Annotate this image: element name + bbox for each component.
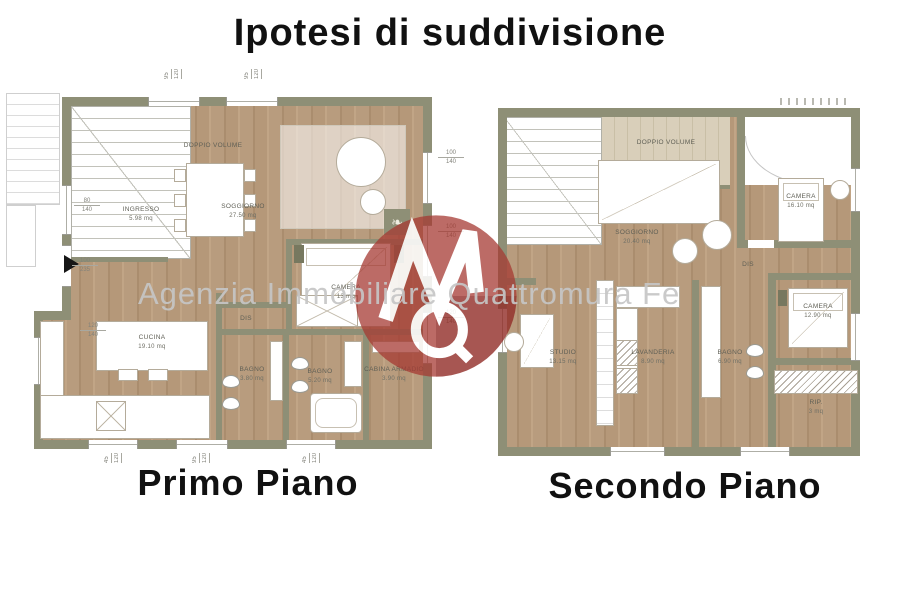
dim-label: 95120: [244, 69, 262, 79]
room-label-camera-2: CAMERA12.90 mq: [783, 302, 853, 321]
wall: [776, 358, 860, 365]
chair: [244, 219, 256, 232]
dining-table: [186, 163, 244, 237]
room-label-lavanderia: LAVANDERIA8.90 mq: [618, 348, 688, 367]
dim-label: 95120: [164, 69, 182, 79]
page-title: Ipotesi di suddivisione: [0, 12, 900, 55]
sofa-sketch: [602, 164, 716, 220]
room-label-dis: DIS: [231, 314, 261, 324]
room-label-cucina: CUCINA19.10 mq: [117, 333, 187, 352]
dim-ticks: [780, 98, 846, 105]
window: [88, 440, 138, 449]
chair: [174, 169, 186, 182]
stool: [118, 369, 138, 381]
door-opening: [748, 240, 774, 248]
dim-label: 100140: [438, 149, 464, 166]
dim-label: 120140: [80, 322, 106, 339]
stairwell: [71, 106, 191, 259]
window: [740, 447, 790, 456]
bidet-icon: [746, 366, 764, 379]
room-label-soggiorno: SOGGIORNO20.40 mq: [602, 228, 672, 247]
pouf: [672, 238, 698, 264]
room-label-soggiorno: SOGGIORNO27.50 mq: [208, 202, 278, 221]
room-label-doppio-volume: DOPPIO VOLUME: [631, 138, 701, 148]
room-label-bagno-1: BAGNO3.80 mq: [217, 365, 287, 384]
roof-void: [745, 117, 851, 185]
room-label-studio: STUDIO13.15 mq: [528, 348, 598, 367]
window: [148, 97, 200, 106]
room-label-bagno-2: BAGNO5.20 mq: [285, 367, 355, 386]
wall: [498, 108, 860, 117]
window: [176, 440, 228, 449]
wall: [498, 447, 860, 456]
room-label-doppio-volume: DOPPIO VOLUME: [178, 141, 248, 151]
wall: [776, 273, 860, 280]
exterior-landing: [6, 205, 36, 267]
chair: [244, 169, 256, 182]
stove: [96, 401, 126, 431]
window: [851, 168, 860, 212]
window: [423, 152, 432, 204]
armchair: [702, 220, 732, 250]
wall: [737, 117, 745, 247]
exterior-stairs: [6, 93, 60, 205]
bidet-icon: [222, 397, 240, 410]
room-label-bagno: BAGNO6.90 mq: [695, 348, 765, 367]
nightstand: [294, 245, 304, 263]
window: [62, 185, 71, 235]
bathtub-inner: [315, 398, 357, 428]
window: [286, 440, 336, 449]
dryer: [616, 368, 638, 394]
agency-watermark-text: Agenzia Immobiliare Quattromura Fe: [138, 276, 680, 312]
floorplan-sheet: Ipotesi di suddivisione: [0, 0, 900, 600]
window: [226, 97, 278, 106]
room-label-dis: DIS: [733, 260, 763, 270]
wardrobe: [774, 370, 858, 394]
stool: [148, 369, 168, 381]
armchair: [336, 137, 386, 187]
wall: [283, 335, 289, 440]
dim-label: 80140: [74, 197, 100, 214]
sofa: [598, 160, 720, 224]
room-label-ingresso: INGRESSO5.98 mq: [106, 205, 176, 224]
caption-secondo-piano: Secondo Piano: [480, 465, 890, 507]
window: [610, 447, 665, 456]
bathtub: [310, 393, 362, 433]
wall: [851, 108, 860, 456]
caption-primo-piano: Primo Piano: [48, 462, 448, 504]
wall: [768, 273, 776, 447]
room-label-camera-1: CAMERA16.10 mq: [766, 192, 836, 211]
dim-label: 100235: [72, 257, 98, 274]
bathroom-counter: [701, 286, 721, 398]
room-label-rip: RIP.3 mq: [781, 398, 851, 417]
